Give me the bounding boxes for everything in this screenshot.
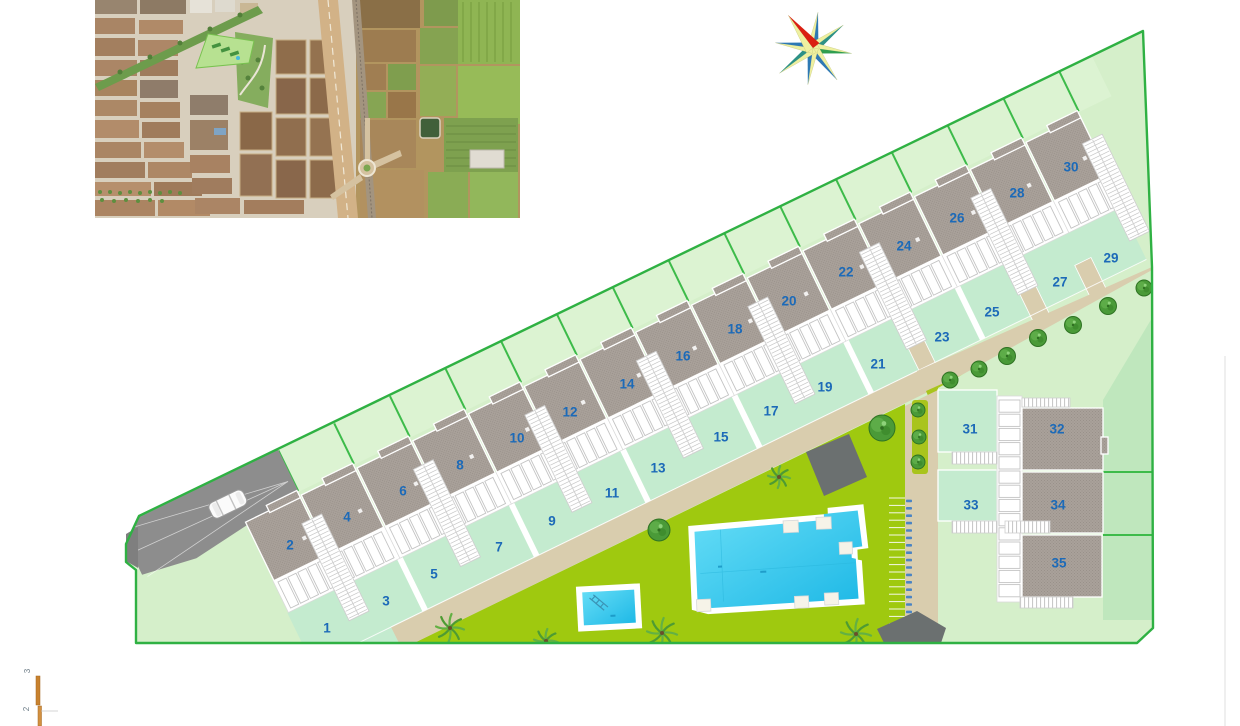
- round-tree-icon: [911, 455, 925, 469]
- plot-number-2: 2: [286, 538, 294, 553]
- bike-rack-icon: [906, 537, 912, 540]
- round-tree-icon: [1030, 330, 1047, 347]
- plot-number-34: 34: [1050, 498, 1066, 513]
- plot-number-15: 15: [713, 430, 729, 445]
- plot-number-16: 16: [675, 349, 691, 364]
- kids-pool-water: [582, 590, 636, 626]
- bike-rack-icon: [906, 611, 912, 614]
- bike-rack-icon: [906, 596, 912, 599]
- compass-rose-icon: [775, 12, 851, 84]
- plot-number-26: 26: [949, 211, 965, 226]
- dimension-marks: 32: [22, 668, 58, 726]
- plot-number-30: 30: [1063, 160, 1078, 175]
- aerial-pond: [420, 118, 440, 138]
- aerial-photo-inset: [95, 0, 520, 218]
- plot-number-17: 17: [763, 404, 778, 419]
- bike-rack-icon: [906, 566, 912, 569]
- plot-number-5: 5: [430, 567, 438, 582]
- plot-number-4: 4: [343, 510, 351, 525]
- bike-rack-icon: [906, 544, 912, 547]
- roof-plot-32: [1022, 408, 1103, 470]
- bike-rack-icon: [906, 574, 912, 577]
- plot-number-3: 3: [382, 594, 390, 609]
- plot-number-28: 28: [1009, 186, 1025, 201]
- bike-rack-icon: [906, 559, 912, 562]
- plot-number-8: 8: [456, 458, 464, 473]
- plot-number-18: 18: [727, 322, 743, 337]
- bike-rack-icon: [906, 507, 912, 510]
- plot-number-1: 1: [323, 621, 331, 636]
- kids-pool: [576, 583, 642, 631]
- plot-number-6: 6: [399, 484, 407, 499]
- round-tree-icon: [971, 361, 987, 377]
- plot-number-33: 33: [963, 498, 979, 513]
- bike-rack-icon: [906, 514, 912, 517]
- plot-number-12: 12: [562, 405, 577, 420]
- plot-number-19: 19: [817, 380, 832, 395]
- plot-number-31: 31: [962, 422, 978, 437]
- round-tree-icon: [911, 403, 925, 417]
- bike-rack-icon: [906, 522, 912, 525]
- bike-rack-icon: [906, 551, 912, 554]
- garden-plot-33: [938, 470, 997, 521]
- bike-rack-icon: [906, 500, 912, 503]
- bike-rack-icon: [906, 529, 912, 532]
- site-plan-document: 1234567891011121314151617181920212223242…: [0, 0, 1240, 726]
- plot-number-7: 7: [495, 540, 503, 555]
- bike-rack-icon: [906, 581, 912, 584]
- plot-number-11: 11: [605, 486, 620, 501]
- round-tree-icon: [869, 415, 895, 441]
- plot-number-22: 22: [838, 265, 853, 280]
- plot-number-20: 20: [781, 294, 796, 309]
- plot-number-29: 29: [1103, 251, 1118, 266]
- round-tree-icon: [1136, 280, 1152, 296]
- round-tree-icon: [999, 348, 1016, 365]
- round-tree-icon: [1065, 317, 1082, 334]
- scale-mark-label: 2: [22, 706, 31, 711]
- round-tree-icon: [648, 519, 670, 541]
- plot-number-27: 27: [1052, 275, 1067, 290]
- round-tree-icon: [942, 372, 958, 388]
- plot-number-25: 25: [984, 305, 1000, 320]
- plot-number-24: 24: [896, 239, 912, 254]
- scale-mark-label: 3: [23, 668, 32, 673]
- plot-number-21: 21: [870, 357, 886, 372]
- bike-rack-icon: [906, 588, 912, 591]
- aerial-farm-fields: [356, 0, 520, 218]
- plot-number-10: 10: [509, 431, 524, 446]
- bike-rack-icon: [906, 603, 912, 606]
- plot-number-14: 14: [619, 377, 635, 392]
- plot-number-9: 9: [548, 514, 556, 529]
- palm-tree-icon: [768, 466, 790, 488]
- plot-number-35: 35: [1051, 556, 1067, 571]
- round-tree-icon: [912, 430, 926, 444]
- plot-number-32: 32: [1049, 422, 1064, 437]
- plot-number-23: 23: [934, 330, 950, 345]
- aerial-greenhouse: [470, 150, 504, 168]
- round-tree-icon: [1100, 298, 1117, 315]
- plot-number-13: 13: [650, 461, 666, 476]
